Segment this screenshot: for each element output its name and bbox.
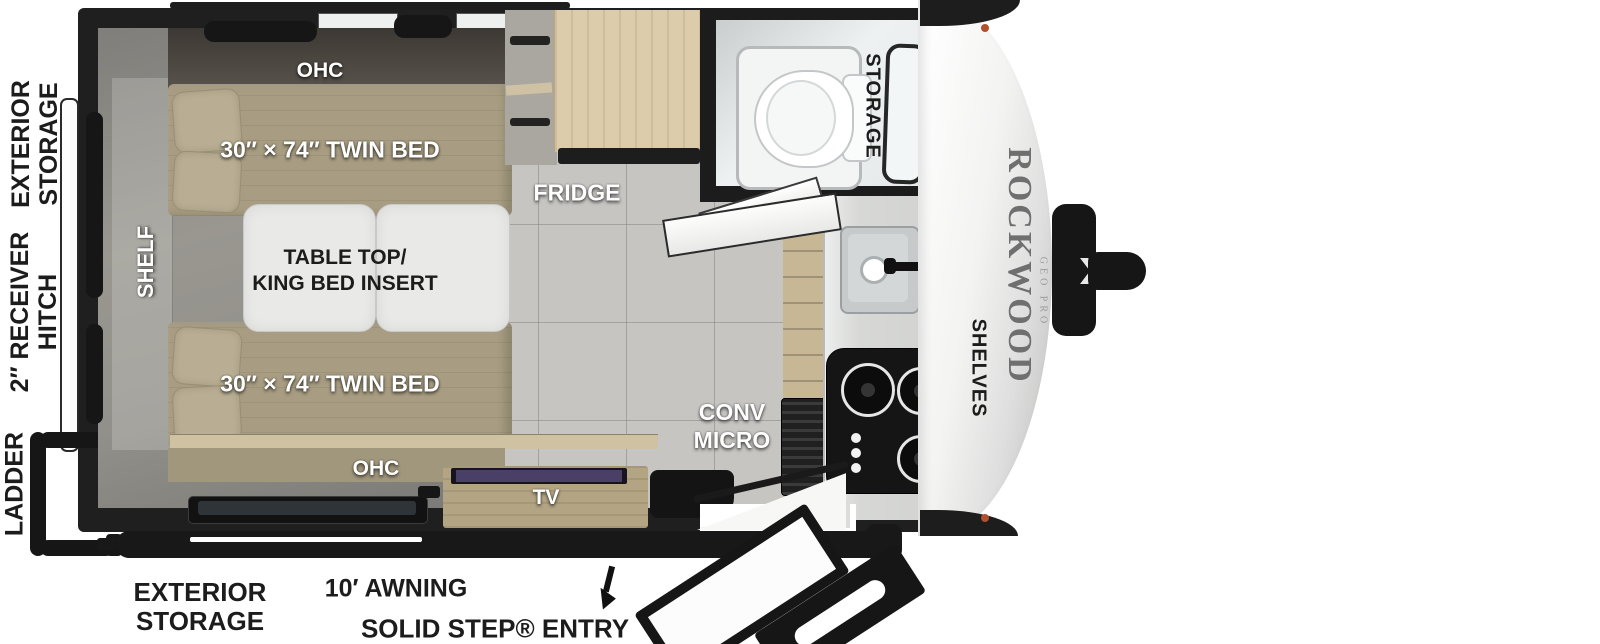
label-table-king-bed: TABLE TOP/ KING BED INSERT	[252, 245, 438, 297]
label-awning: 10′ AWNING	[325, 575, 468, 604]
label-exterior-storage-side: EXTERIOR STORAGE	[7, 80, 63, 208]
label-line: TABLE TOP/	[252, 245, 438, 271]
wardrobe-rod	[510, 36, 550, 45]
cooktop-knob	[851, 433, 861, 443]
label-exterior-storage-bottom: EXTERIOR STORAGE	[134, 578, 267, 636]
rv-floorplan: EXTERIOR STORAGE 2″ RECEIVER HITCH LADDE…	[0, 0, 1600, 644]
cooktop-knob	[851, 463, 861, 473]
burner-large	[841, 363, 895, 417]
cooktop-knob	[851, 448, 861, 458]
label-line: CONV	[694, 398, 771, 426]
brand-rockwood: ROCKWOOD	[1000, 147, 1038, 384]
label-line: MICRO	[694, 426, 771, 454]
awning-bracket-left	[97, 538, 117, 551]
ceiling-light-1	[204, 21, 317, 42]
label-receiver-hitch: 2″ RECEIVER HITCH	[6, 232, 62, 393]
rear-access-hatch	[60, 98, 79, 452]
rear-window-2	[86, 324, 103, 424]
label-line: 2″ RECEIVER	[6, 232, 34, 393]
front-cap-bottom-rim	[920, 510, 1018, 536]
label-twin-bed-bottom: 30″ × 74″ TWIN BED	[220, 371, 440, 398]
rear-window-1	[86, 112, 103, 298]
label-ohc-bottom: OHC	[353, 457, 400, 481]
label-twin-bed-top: 30″ × 74″ TWIN BED	[220, 137, 440, 164]
stowed-tv-screen	[198, 501, 416, 515]
roof-rail	[170, 2, 570, 9]
label-line: STORAGE	[134, 607, 267, 636]
label-ohc-top: OHC	[297, 59, 344, 83]
label-bath-storage: STORAGE	[861, 53, 884, 159]
marker-light-top	[981, 24, 989, 32]
fridge-vent-ledge	[558, 148, 700, 164]
label-line: EXTERIOR	[7, 80, 35, 208]
front-cap-top-rim	[920, 0, 1020, 26]
hitch-coupler	[1088, 252, 1146, 290]
label-line: EXTERIOR	[134, 578, 267, 607]
wardrobe-rail	[510, 118, 550, 126]
ceiling-light-2	[394, 15, 452, 38]
label-fridge: FRIDGE	[534, 180, 621, 207]
label-shelf: SHELF	[133, 226, 159, 298]
fridge-cabinet	[553, 10, 713, 152]
tv-mount-foot	[418, 486, 440, 498]
label-line: KING BED INSERT	[252, 271, 438, 297]
toilet-seat	[766, 80, 836, 156]
label-tv: TV	[533, 486, 560, 510]
label-solid-step-entry: SOLID STEP® ENTRY	[361, 614, 629, 644]
awning-highlight	[190, 537, 422, 542]
tv-screen	[456, 470, 622, 482]
label-line: STORAGE	[35, 80, 63, 208]
ohc-bottom-ledge	[170, 434, 658, 449]
label-line: HITCH	[34, 232, 62, 393]
label-ladder: LADDER	[1, 432, 30, 536]
brand-geo-pro: GEO PRO	[1038, 257, 1049, 328]
marker-light-bottom	[981, 514, 989, 522]
entry-arrow-stem	[603, 566, 615, 593]
label-conv-micro: CONV MICRO	[694, 398, 771, 454]
label-front-shelves: SHELVES	[967, 319, 990, 418]
ladder-rail	[30, 432, 46, 556]
